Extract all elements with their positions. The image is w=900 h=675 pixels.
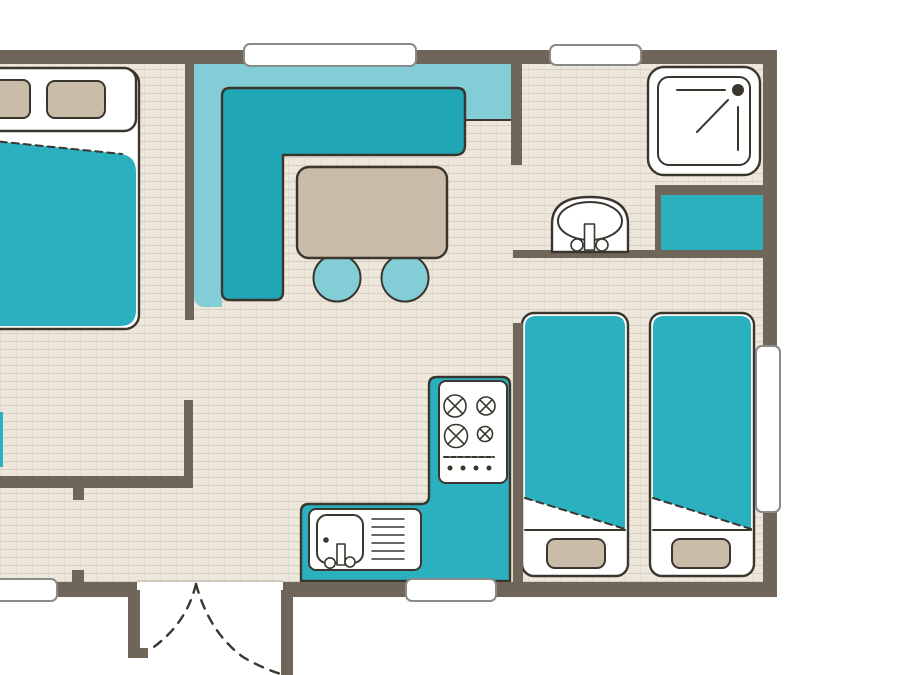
pillow-icon <box>547 539 605 568</box>
stool-icon <box>314 255 361 302</box>
door-swing-icon <box>148 584 299 675</box>
single-bed-2 <box>650 313 754 576</box>
door-jamb-left-foot <box>128 648 148 658</box>
wall-stub-upper <box>73 488 84 500</box>
double-bed-blanket <box>0 138 136 326</box>
door-jamb-right <box>281 590 293 675</box>
single-bed-blanket <box>525 316 625 529</box>
shower-icon <box>648 67 760 175</box>
wall-right <box>763 50 777 597</box>
kitchen-counter <box>301 377 510 581</box>
pillow-icon <box>672 539 730 568</box>
wall-bottom-right <box>283 582 763 597</box>
dining-set <box>297 167 447 302</box>
wall-cabinet-left <box>655 185 661 258</box>
door-jamb-left <box>128 590 140 650</box>
pillow-icon <box>47 81 105 118</box>
window-bottom-middle <box>405 578 497 602</box>
window-top-kitchen <box>243 43 417 67</box>
wall-hall-vertical <box>184 400 193 488</box>
stove-hob-icon <box>439 381 507 483</box>
double-bed <box>0 68 139 329</box>
wall-bedroom-partition <box>185 56 194 320</box>
window-right-bedroom <box>755 345 781 513</box>
wall-cabinet-top <box>655 185 763 195</box>
washbasin-icon <box>552 197 628 252</box>
wall-bathroom-partition <box>511 56 522 165</box>
window-bottom-left <box>0 578 58 602</box>
wall-twin-bedroom-partition <box>513 323 523 593</box>
sink-unit-icon <box>309 509 421 570</box>
single-bed-blanket <box>653 316 751 529</box>
window-top-bathroom <box>549 44 642 66</box>
wall-stub-lower <box>72 570 84 582</box>
dining-table-icon <box>297 167 447 258</box>
wall-hall-horizontal <box>0 476 193 488</box>
single-bed-1 <box>522 313 628 576</box>
floorplan-canvas <box>0 0 900 675</box>
stool-icon <box>382 255 429 302</box>
pillow-icon <box>0 80 30 118</box>
